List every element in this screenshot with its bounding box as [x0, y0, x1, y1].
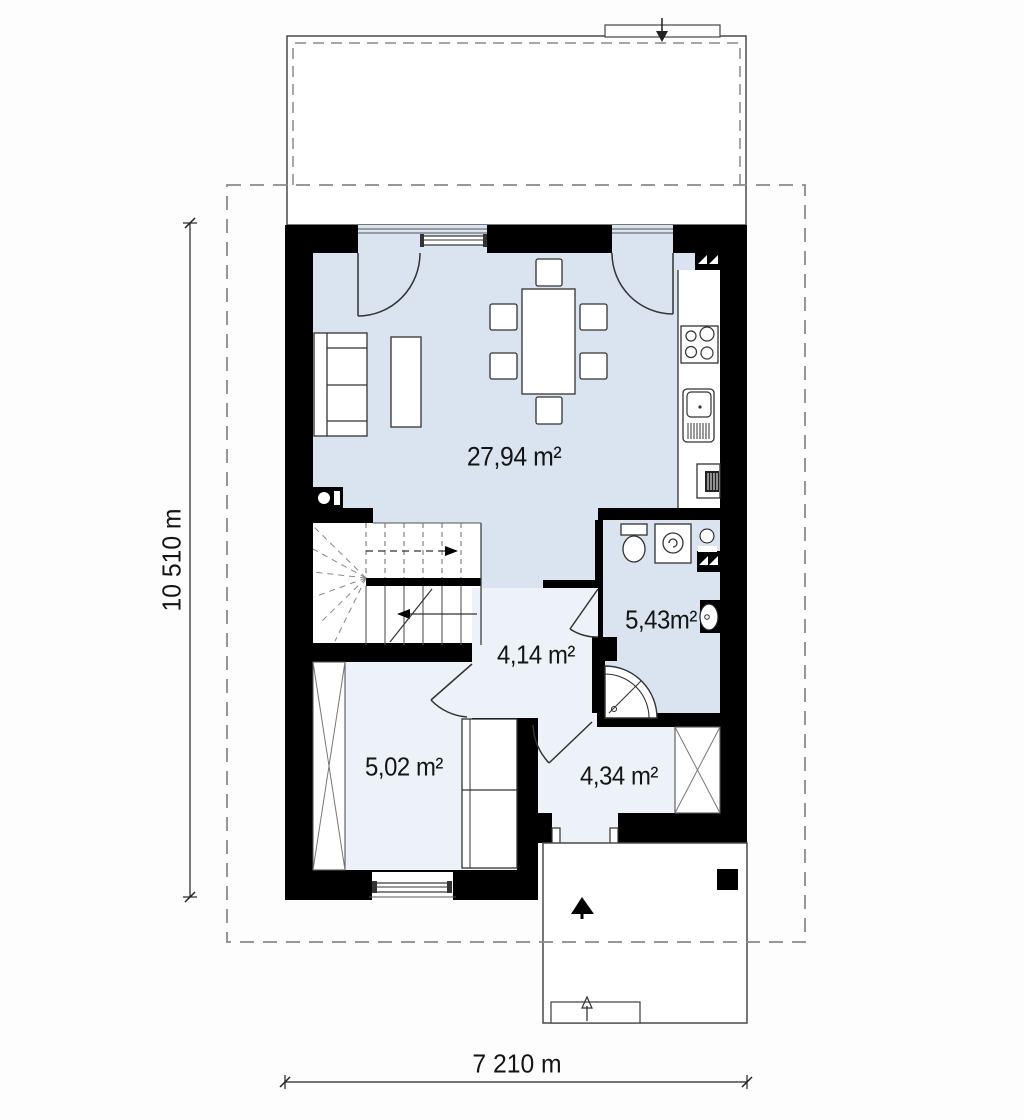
height-dimension-label: 10 510 m — [157, 509, 188, 612]
entry-wardrobe-x-icon — [675, 727, 720, 813]
dining-table — [522, 289, 575, 394]
shelf-cabinet — [462, 719, 517, 868]
chimney-icon — [313, 487, 343, 508]
kitchen-sink-icon — [683, 389, 714, 442]
porch-step — [551, 1002, 640, 1023]
storage-area-label: 5,02 m² — [365, 752, 443, 783]
chair — [580, 353, 607, 379]
entry-area-label: 4,34 m² — [580, 761, 658, 792]
vent-shaft-kitchen-icon — [695, 251, 720, 270]
floor-plan-page: 27,94 m² 4,14 m² 5,43m² 5,02 m² 4,34 m² … — [0, 0, 1024, 1120]
floor-plan-drawing — [0, 0, 1024, 1120]
stove-icon — [681, 326, 718, 363]
oven-icon — [697, 464, 720, 498]
porch-column — [717, 869, 738, 890]
chair — [490, 304, 517, 330]
chair — [490, 353, 517, 379]
porch — [543, 843, 747, 1023]
sofa-icon — [314, 333, 367, 436]
washing-machine-icon — [655, 524, 691, 563]
vent-shaft-bath-icon — [697, 551, 720, 572]
kitchen-counter — [678, 270, 720, 508]
chair — [580, 304, 607, 330]
width-dimension-label: 7 210 m — [472, 1049, 561, 1080]
toilet-icon — [621, 524, 647, 562]
living-area-label: 27,94 m² — [467, 442, 561, 473]
chair — [536, 397, 562, 424]
coffee-table — [391, 337, 421, 427]
wash-basin-icon — [700, 600, 720, 633]
bathroom-area-label: 5,43m² — [625, 605, 697, 636]
terrace-outline — [287, 18, 746, 225]
hallway-area-label: 4,14 m² — [497, 640, 575, 671]
chair — [536, 259, 562, 286]
wardrobe-x-icon — [313, 662, 345, 870]
